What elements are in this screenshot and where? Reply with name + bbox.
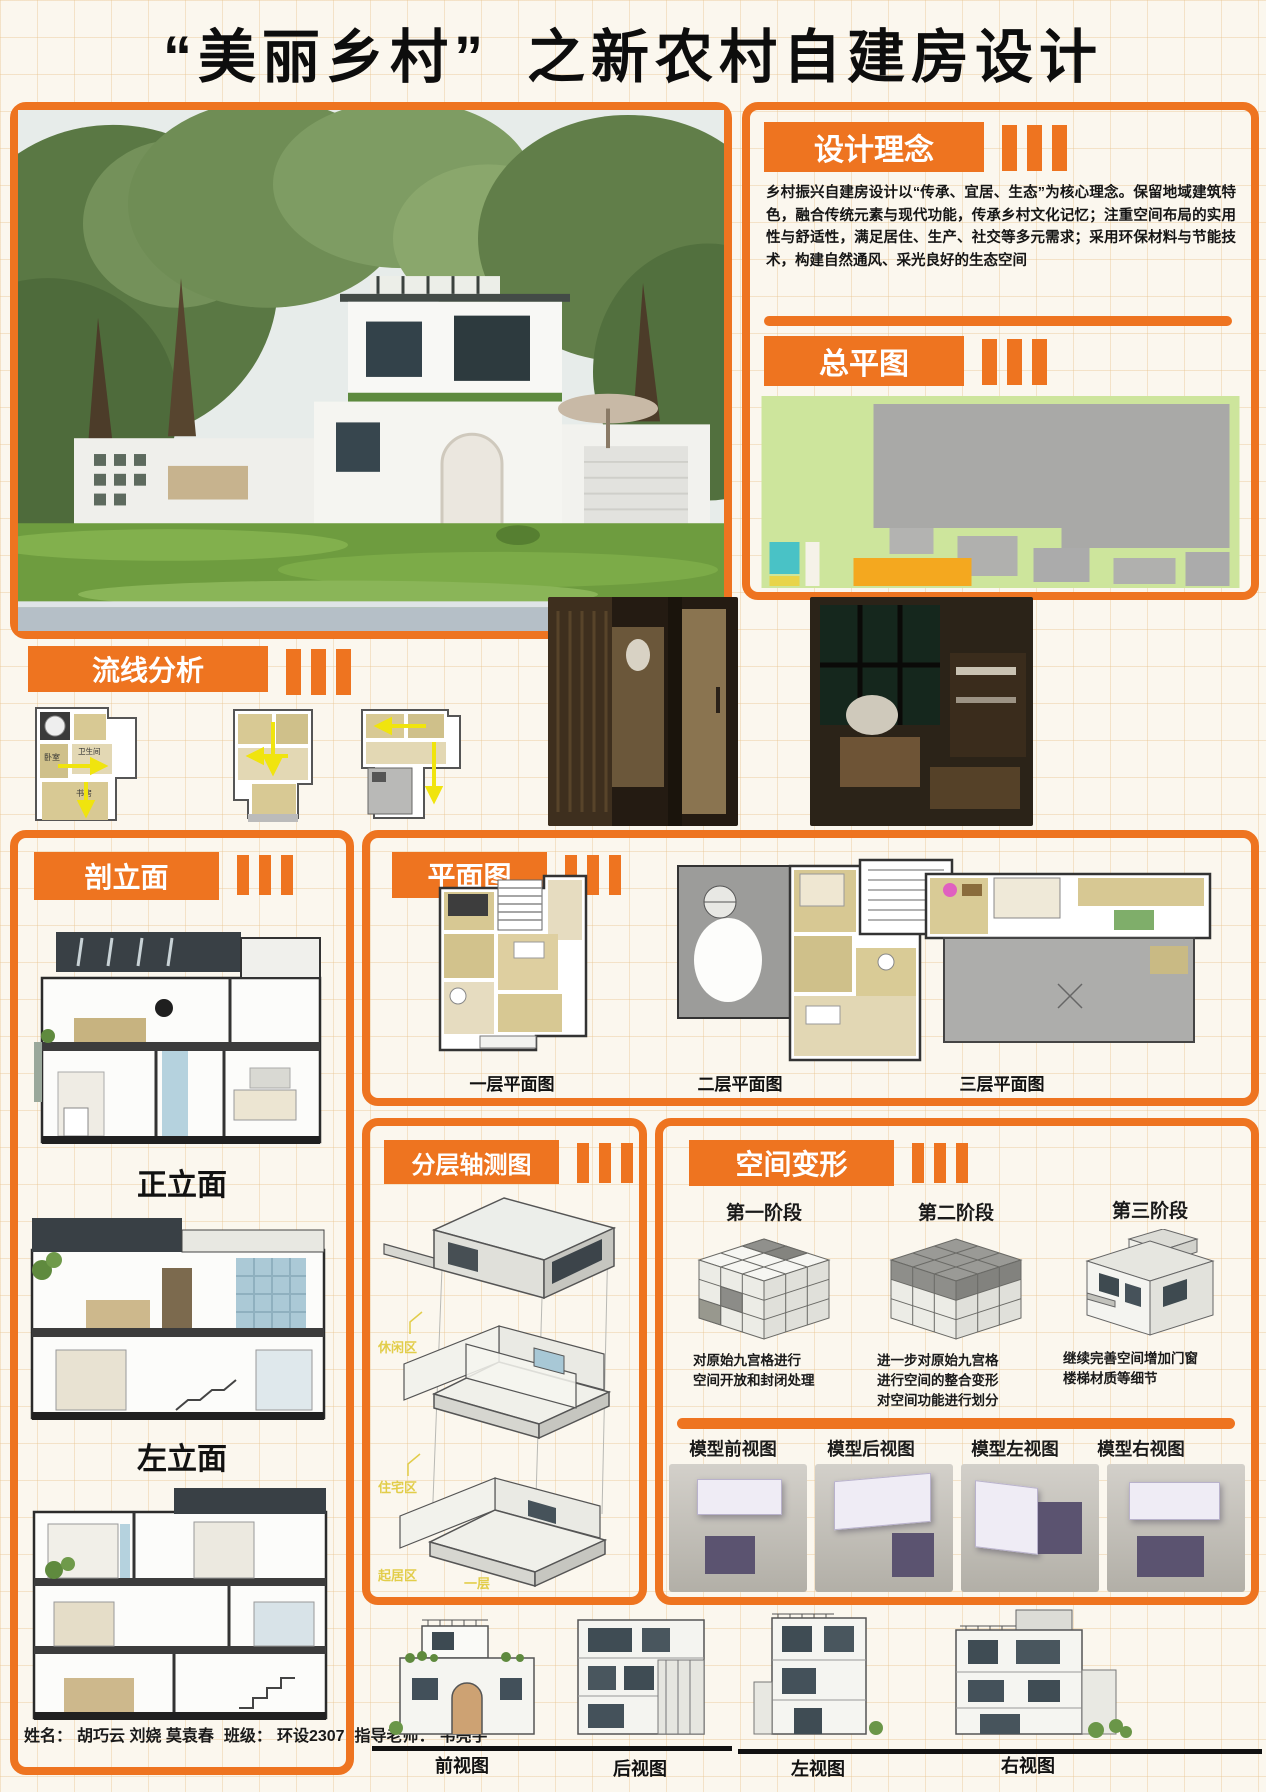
section-header: 剖立面	[34, 852, 293, 900]
elevation-right-label: 右视图	[968, 1752, 1088, 1778]
header-bars-icon	[577, 1140, 633, 1183]
ground-line	[372, 1746, 732, 1751]
elevation-front-drawing	[388, 1612, 546, 1742]
section-divider	[764, 316, 1232, 326]
model-left-view-label: 模型左视图	[945, 1436, 1085, 1461]
render-panel	[10, 102, 732, 639]
stage-1-desc: 对原始九宫格进行 空间开放和封闭处理	[671, 1351, 857, 1391]
stage-3-desc: 继续完善空间增加门窗 楼梯材质等细节	[1057, 1349, 1243, 1389]
house-rendering-image	[18, 110, 724, 631]
credits-bar: 姓名：胡巧云 刘娆 莫袁春班级：环设2307指导老师：韦亮宇	[24, 1722, 340, 1746]
stage-2-cube-diagram	[881, 1233, 1031, 1345]
elevation-back-drawing	[558, 1612, 723, 1742]
model-front-view-label: 模型前视图	[663, 1436, 803, 1461]
circulation-plan-3	[356, 702, 466, 824]
axonometric-panel: 分层轴测图 休闲区 三层	[362, 1118, 647, 1605]
circulation-plan-2	[226, 704, 320, 824]
interior-photo-hallway	[548, 597, 738, 826]
room-label: 卫生间	[78, 746, 101, 756]
circulation-header: 流线分析	[28, 646, 351, 695]
stage-1: 第一阶段 对原始九宫格进行 空间开放和	[671, 1198, 857, 1391]
title-rest: 之新农村自建房设计	[527, 25, 1103, 90]
concept-masterplan-panel: 设计理念 乡村振兴自建房设计以“传承、宜居、生态”为核心理念。保留地域建筑特色，…	[742, 102, 1259, 600]
elevation-front-label: 前视图	[402, 1752, 522, 1778]
master-plan-header: 总平图	[764, 336, 1047, 386]
plan-1-label: 一层平面图	[432, 1070, 592, 1095]
title-quoted: “美丽乡村”	[163, 25, 489, 90]
axonometric-heading: 分层轴测图	[384, 1140, 559, 1184]
floor-plan-panel: 平面图 一层平面图	[362, 830, 1259, 1106]
interior-photo-dining	[810, 597, 1033, 826]
transformation-header: 空间变形	[689, 1140, 968, 1186]
axon-zone-label: 休闲区	[377, 1340, 417, 1355]
credits-names: 胡巧云 刘娆 莫袁春	[77, 1722, 214, 1746]
axon-level-label: 一层	[464, 1576, 490, 1590]
model-front-photo	[669, 1464, 807, 1592]
site-plan-drawing	[760, 396, 1241, 588]
design-concept-body: 乡村振兴自建房设计以“传承、宜居、生态”为核心理念。保留地域建筑特色，融合传统元…	[766, 182, 1236, 272]
credits-name-label: 姓名：	[24, 1722, 72, 1746]
axon-zone-label: 起居区	[377, 1568, 417, 1583]
plan-3-label: 三层平面图	[922, 1070, 1082, 1095]
elevation-left-label: 左视图	[758, 1755, 878, 1781]
plan-2-label: 二层平面图	[660, 1070, 820, 1095]
master-plan-heading: 总平图	[764, 336, 964, 386]
model-left-photo	[961, 1464, 1099, 1592]
transformation-heading: 空间变形	[689, 1140, 894, 1186]
poster: “美丽乡村”之新农村自建房设计	[0, 0, 1266, 1792]
front-elevation-label: 正立面	[18, 1160, 346, 1204]
model-right-view-label: 模型右视图	[1071, 1436, 1211, 1461]
transformation-panel: 空间变形 第一阶段	[655, 1118, 1259, 1605]
section-panel: 剖立面 正立面	[10, 830, 354, 1775]
header-bars-icon	[237, 852, 293, 895]
section-drawing-left	[26, 1210, 331, 1425]
stage-3-cube-diagram	[1075, 1229, 1225, 1343]
axonometric-header: 分层轴测图	[384, 1140, 633, 1184]
room-label: 卧室	[44, 752, 60, 762]
floor-plan-3-drawing	[918, 866, 1218, 1062]
left-elevation-label: 左立面	[18, 1434, 346, 1478]
stage-3-title: 第三阶段	[1057, 1196, 1243, 1223]
model-back-photo	[815, 1464, 953, 1592]
page-title: “美丽乡村”之新农村自建房设计	[0, 10, 1266, 94]
stage-3: 第三阶段 继续完善空间增加门窗 楼梯材质等细节	[1057, 1196, 1243, 1389]
stage-2-title: 第二阶段	[863, 1198, 1049, 1225]
header-bars-icon	[982, 336, 1047, 385]
elevation-back-label: 后视图	[580, 1755, 700, 1781]
stage-2: 第二阶段 进一步对原始九宫格 进行空间的整合变形 对空间功能进行划分	[863, 1198, 1049, 1411]
floor-plan-2-drawing	[670, 858, 960, 1068]
elevation-left-drawing	[742, 1612, 894, 1742]
stage-1-cube-diagram	[689, 1233, 839, 1345]
section-divider	[677, 1418, 1235, 1429]
axon-zone-label: 住宅区	[378, 1480, 417, 1495]
credits-class-value: 环设2307	[277, 1722, 345, 1746]
section-drawing-front	[34, 922, 329, 1152]
model-right-photo	[1107, 1464, 1245, 1592]
circulation-heading: 流线分析	[28, 646, 268, 692]
circulation-plan-1: 卧室 卫生间 书房	[30, 702, 142, 826]
elevation-right-drawing	[920, 1608, 1135, 1742]
design-concept-header: 设计理念	[764, 122, 1067, 172]
header-bars-icon	[286, 646, 351, 695]
stage-1-title: 第一阶段	[671, 1198, 857, 1225]
credits-class-label: 班级：	[224, 1722, 272, 1746]
model-back-view-label: 模型后视图	[801, 1436, 941, 1461]
section-heading: 剖立面	[34, 852, 219, 900]
section-drawing-three-story	[24, 1482, 336, 1727]
floor-plan-1-drawing	[428, 864, 598, 1064]
header-bars-icon	[912, 1140, 968, 1183]
header-bars-icon	[1002, 122, 1067, 171]
exploded-axonometric-drawing: 休闲区 三层 住宅区 二层 起	[376, 1192, 632, 1590]
stage-2-desc: 进一步对原始九宫格 进行空间的整合变形 对空间功能进行划分	[863, 1351, 1049, 1411]
design-concept-heading: 设计理念	[764, 122, 984, 172]
